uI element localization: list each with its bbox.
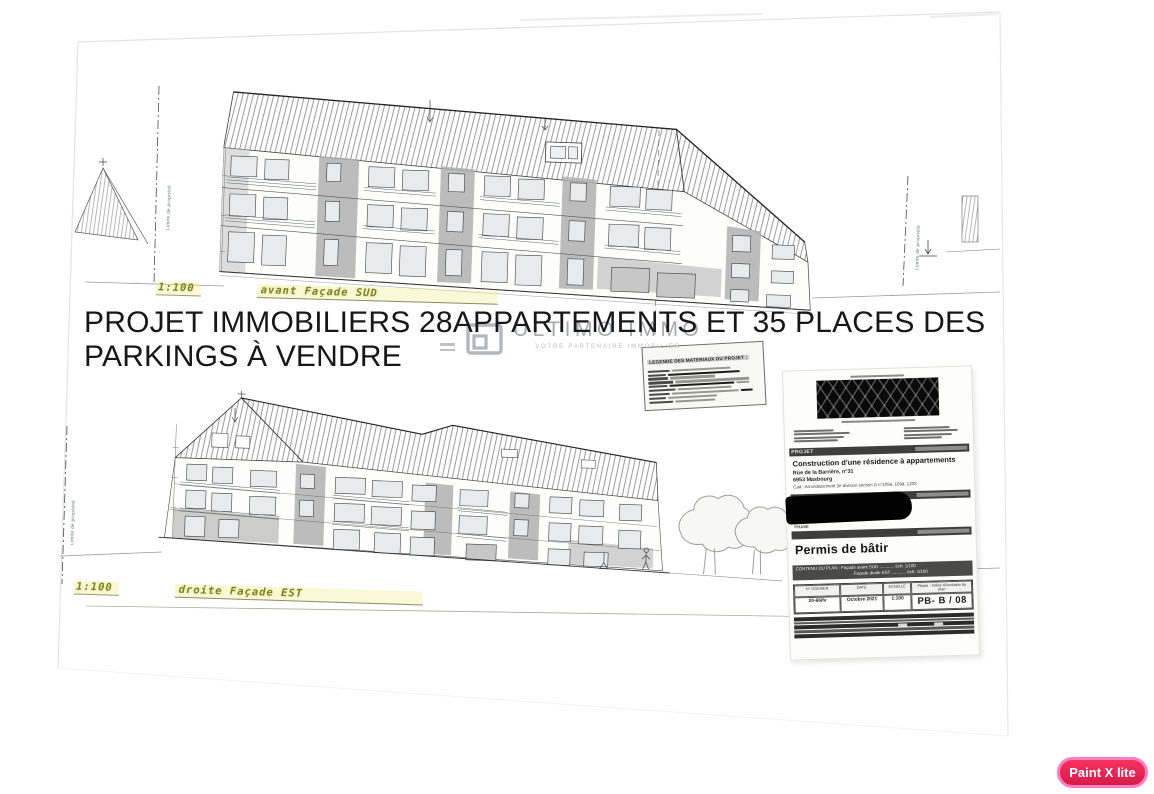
contact-right bbox=[904, 424, 960, 442]
contact-blocks bbox=[794, 424, 960, 445]
table-header: ECHELLE bbox=[883, 582, 912, 595]
project-label: PROJET bbox=[791, 449, 814, 456]
bar-right-box bbox=[915, 446, 967, 451]
title-block: PROJET Construction d'une résidence à ap… bbox=[782, 365, 980, 660]
elevation-east-drawing bbox=[147, 387, 794, 609]
plan-content-header: CONTENU DU PLAN : Façade avant SUD .....… bbox=[792, 560, 972, 580]
bar-right-box bbox=[917, 529, 969, 534]
scale-value-east: 1:100 bbox=[74, 581, 119, 596]
revision-stripes bbox=[794, 612, 975, 638]
dormer-window bbox=[545, 142, 582, 163]
trees-sketch bbox=[677, 494, 793, 578]
table-value-phase: PB- B / 08 bbox=[912, 592, 973, 610]
scale-value-south: 1:100 bbox=[156, 281, 201, 296]
neighbor-wall-sketch bbox=[919, 196, 1000, 256]
stamp-caption-bottom bbox=[841, 419, 915, 423]
headline-line2: PARKINGS À VENDRE bbox=[84, 340, 985, 374]
redacted-owner bbox=[785, 491, 912, 525]
table-value-date: Octobre 2021 bbox=[841, 595, 884, 612]
headline-line1: PROJET IMMOBILIERS 28APPARTEMENTS ET 35 … bbox=[84, 306, 985, 340]
redacted-stamp bbox=[816, 377, 939, 418]
neighbor-gable-sketch bbox=[75, 158, 148, 244]
paint-x-lite-badge[interactable]: Paint X lite bbox=[1057, 757, 1148, 788]
listing-headline: PROJET IMMOBILIERS 28APPARTEMENTS ET 35 … bbox=[84, 306, 985, 374]
table-value-echelle: 1:100 bbox=[883, 594, 912, 611]
contact-left bbox=[794, 427, 850, 445]
plan-info-table: N° DOSSIER DATE ECHELLE Phase - Indice d… bbox=[793, 579, 974, 614]
bar-right-box bbox=[916, 492, 968, 497]
permit-title: Permis de bâtir bbox=[795, 539, 969, 558]
stamp-caption-top bbox=[850, 374, 904, 378]
elevation-south-drawing bbox=[218, 76, 821, 321]
table-value-dossier: 20-66/fv bbox=[794, 596, 841, 613]
